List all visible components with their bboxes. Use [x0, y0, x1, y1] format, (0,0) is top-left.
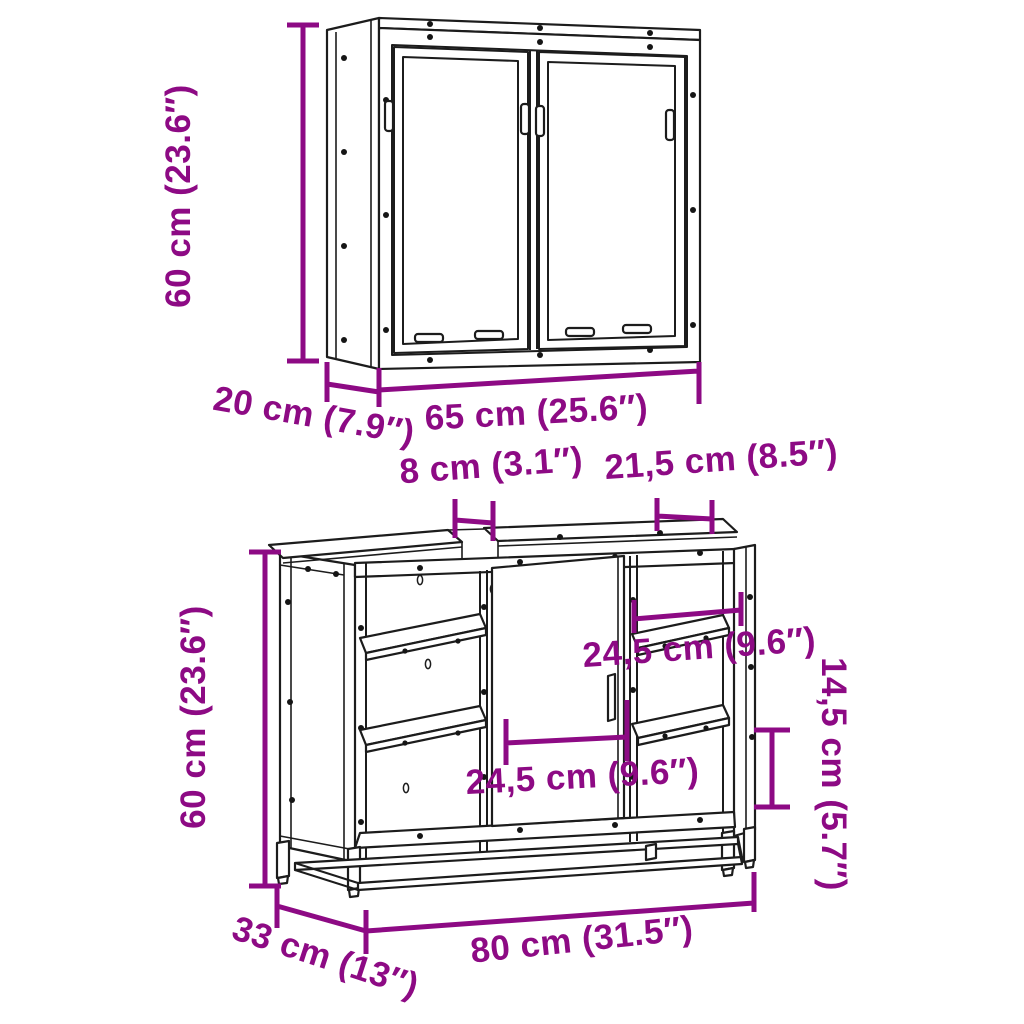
door-vent-tab: [623, 325, 651, 333]
foot: [723, 868, 733, 876]
door-handle: [608, 674, 615, 721]
vanity-side-panel: [280, 553, 355, 862]
foot: [278, 876, 288, 884]
vanity-right-section-height-label: 14,5 cm (5.7″): [814, 657, 853, 891]
vanity-height-label: 60 cm (23.6″): [174, 605, 213, 829]
mirror-cabinet-side-panel: [327, 18, 379, 369]
vanity-top-right-width-label: 21,5 cm (8.5″): [603, 432, 839, 487]
door-vent-tab: [415, 334, 443, 342]
mirror-cabinet-width-label: 65 cm (25.6″): [424, 387, 649, 438]
door-vent-tab: [475, 331, 503, 339]
door-hinge-icon: [521, 104, 529, 134]
dimension-line-right-height: [754, 730, 790, 807]
vanity-left-shelves: [360, 575, 496, 792]
leg-back-right: [744, 827, 755, 862]
door-hinge-icon: [536, 106, 544, 136]
adjuster-foot: [646, 844, 656, 860]
dimension-line-height: [249, 552, 281, 886]
door-vent-tab: [566, 328, 594, 336]
vanity-top-gap-label: 8 cm (3.1″): [398, 440, 584, 492]
mirror-cabinet-height-label: 60 cm (23.6″): [159, 84, 198, 308]
door-hinge-icon: [385, 101, 393, 131]
vanity-cabinet-drawing: [269, 519, 755, 897]
vanity-depth-label: 33 cm (13″): [228, 909, 424, 1006]
dimension-line-height: [287, 25, 319, 361]
door-hinge-icon: [666, 110, 674, 140]
foot: [745, 860, 754, 868]
furniture-dimension-diagram: 60 cm (23.6″) 20 cm (7.9″) 65 cm (25.6″): [0, 0, 1024, 1024]
dimension-line-top-gap: [455, 499, 493, 541]
mirror-cabinet-drawing: [327, 18, 700, 369]
leg-back-left: [277, 841, 289, 878]
